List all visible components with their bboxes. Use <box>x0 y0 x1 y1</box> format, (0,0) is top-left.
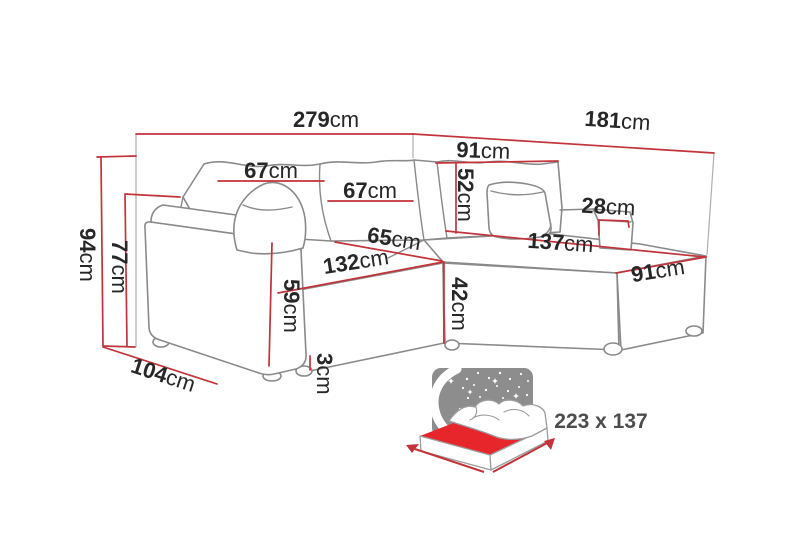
dim-label-total-depth: 181cm <box>584 106 652 136</box>
dim-label-back-cushion-height: 52cm <box>453 168 478 222</box>
sleeping-area-label: 223 x 137 <box>554 410 647 433</box>
dim-label-total-width: 279cm <box>293 107 359 132</box>
dimension-diagram-svg: 279cm 181cm 91cm 67cm 67cm 52cm 28cm 137… <box>0 0 800 533</box>
dim-label-middle-back-cushion-width: 67cm <box>343 178 397 203</box>
dim-label-left-back-cushion-width: 67cm <box>244 158 298 183</box>
leg <box>445 340 459 350</box>
dim-label-backrest-height: 77cm <box>107 240 132 294</box>
dim-label-leg-height: 3cm <box>312 353 337 395</box>
furniture-dimension-diagram: 279cm 181cm 91cm 67cm 67cm 52cm 28cm 137… <box>0 0 800 533</box>
leg <box>604 343 622 355</box>
perspective-right-edge <box>707 153 714 255</box>
dim-label-seat-height: 42cm <box>447 277 472 331</box>
dim-label-chaise-length: 137cm <box>527 228 595 258</box>
corner-sofa-drawing <box>145 160 706 381</box>
bed-length-arrowhead-icon <box>406 444 419 453</box>
dim-label-armrest-height: 59cm <box>279 279 304 333</box>
dim-label-total-height: 94cm <box>75 228 100 282</box>
sofa-bed-icon: 223 x 137 <box>406 368 648 472</box>
dim-label-right-back-cushion-width: 91cm <box>456 137 511 164</box>
leg <box>686 326 702 336</box>
dim-label-side-depth: 104cm <box>128 353 199 397</box>
dim-label-right-armrest-width: 28cm <box>581 193 636 221</box>
